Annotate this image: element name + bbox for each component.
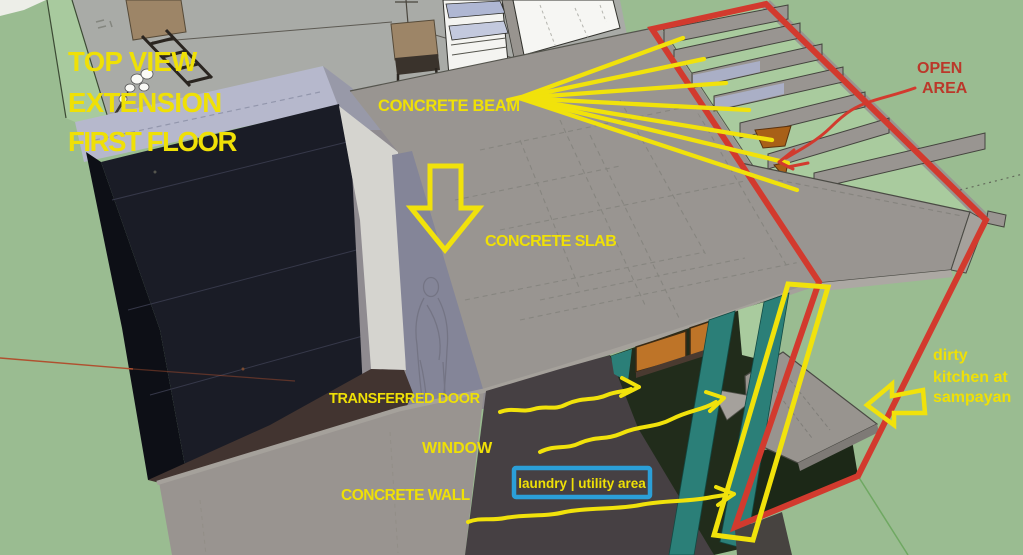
svg-text:AREA: AREA (922, 80, 968, 97)
svg-text:EXTENSION: EXTENSION (68, 87, 222, 118)
svg-text:dirty: dirty (933, 347, 968, 364)
svg-text:TOP VIEW: TOP VIEW (68, 46, 197, 77)
svg-text:TRANSFERRED DOOR: TRANSFERRED DOOR (329, 391, 481, 407)
svg-text:kitchen at: kitchen at (933, 369, 1008, 386)
svg-text:FIRST FLOOR: FIRST FLOOR (68, 126, 237, 157)
svg-text:sampayan: sampayan (933, 389, 1011, 406)
svg-text:OPEN: OPEN (917, 60, 962, 77)
svg-text:CONCRETE WALL: CONCRETE WALL (341, 487, 470, 504)
svg-text:laundry | utility area: laundry | utility area (518, 476, 646, 491)
svg-text:CONCRETE SLAB: CONCRETE SLAB (485, 233, 616, 250)
svg-text:WINDOW: WINDOW (422, 440, 493, 457)
svg-text:CONCRETE BEAM: CONCRETE BEAM (378, 97, 520, 115)
